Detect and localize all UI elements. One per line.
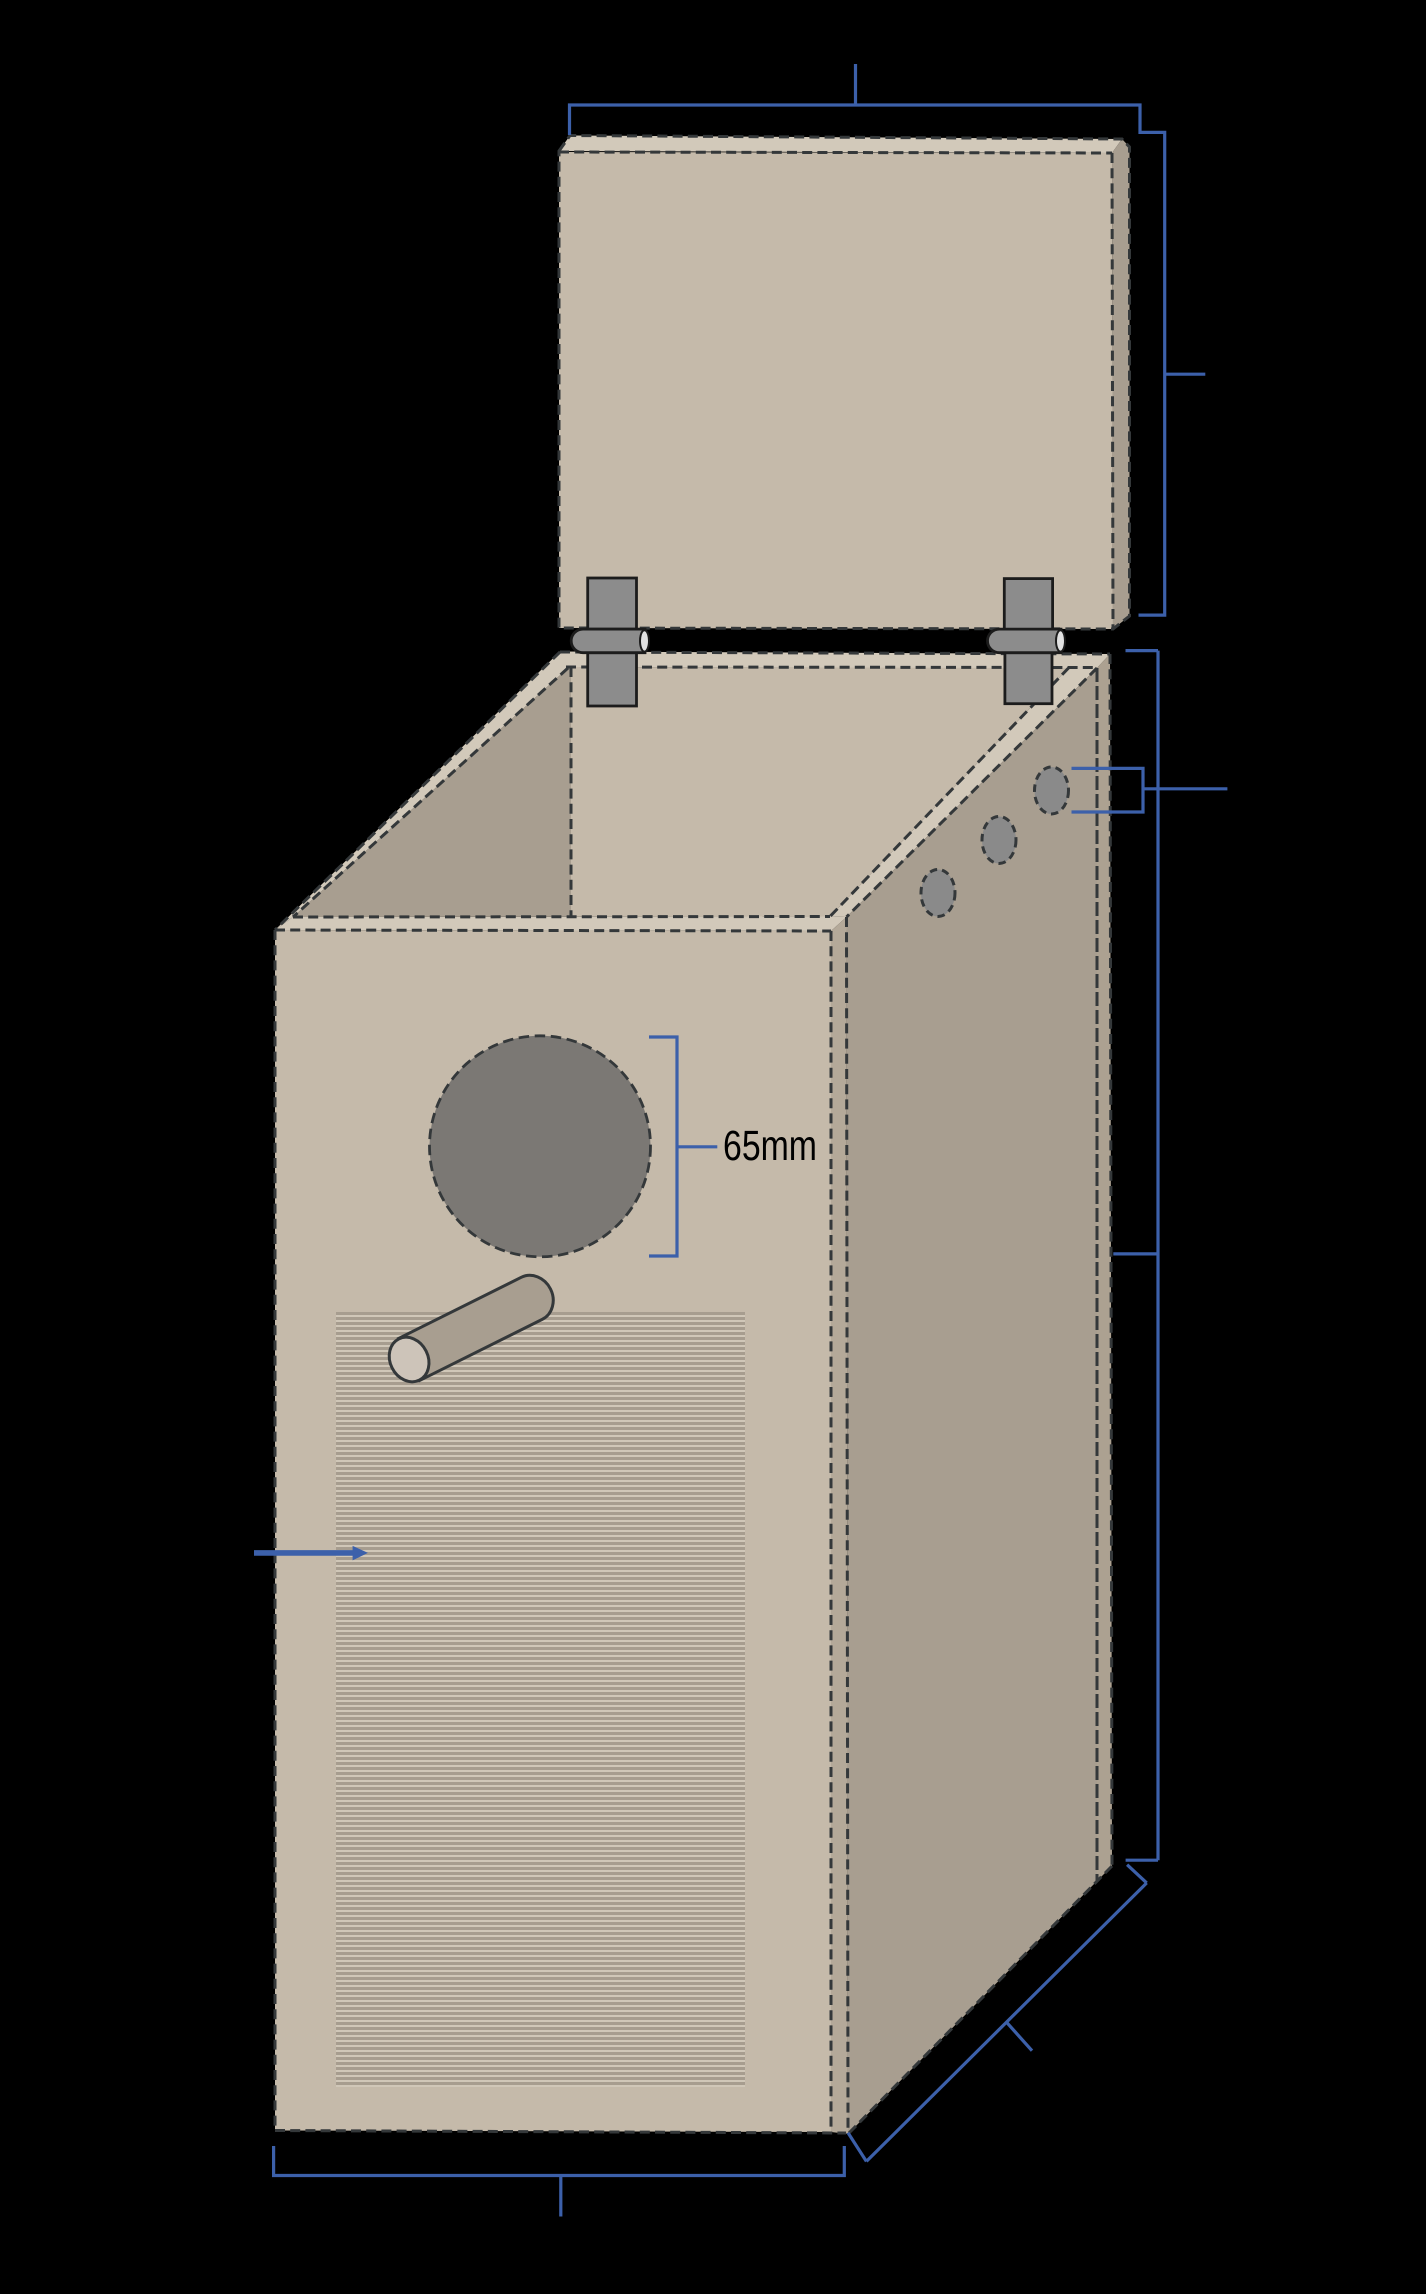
svg-text:65mm: 65mm: [723, 1123, 817, 1170]
